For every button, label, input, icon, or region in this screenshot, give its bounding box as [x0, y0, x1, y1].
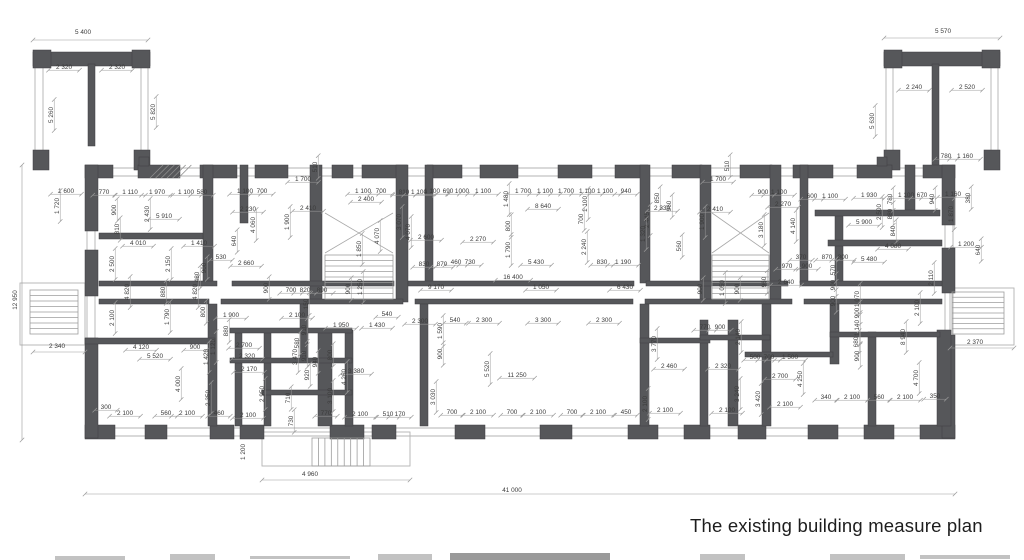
dimension-label: 2 370 — [967, 339, 983, 346]
dimension-label: 12 950 — [12, 290, 19, 310]
dimension-label: 1 200 — [240, 444, 247, 460]
dimension-label: 5 570 — [935, 28, 951, 35]
dimension-label: 5 400 — [75, 29, 91, 36]
dimension-label: 41 000 — [502, 487, 522, 494]
plan-caption: The existing building measure plan — [690, 515, 1010, 537]
drawing-sheet: 5 4002 3202 3205 2605 8205 5702 2402 520… — [0, 0, 1024, 560]
dimension-label: 4 960 — [302, 471, 318, 478]
dimension-label: 4 060 — [250, 217, 257, 233]
cutoff-strip-layer — [55, 553, 1010, 560]
floor-plan: 5 4002 3202 3205 2605 8205 5702 2402 520… — [0, 0, 1024, 560]
dimension-label: 2 340 — [49, 343, 65, 350]
